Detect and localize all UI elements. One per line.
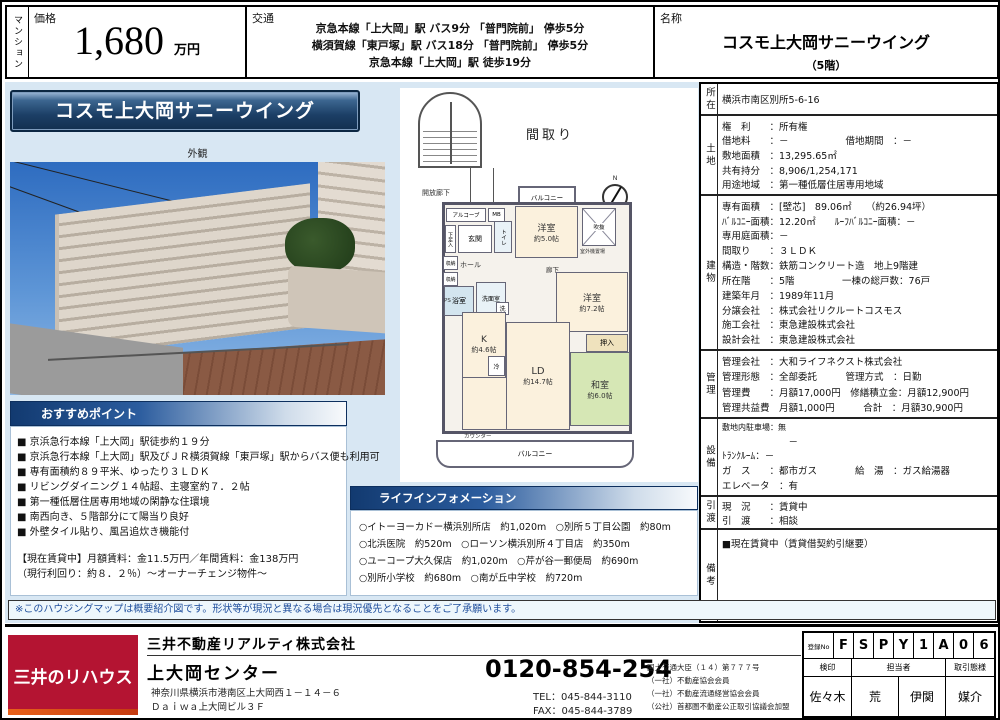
address-line: Ｄａｉｗａ上大岡ビル３Ｆ [151, 699, 265, 713]
fax-number: FAX：045-844-3789 [533, 705, 632, 719]
staff-stamp: 荒 [852, 677, 899, 716]
tel-number: TEL：045-844-3110 [533, 691, 632, 705]
license-line: （一社）不動産協会会員 [647, 674, 799, 687]
license-line: 国土交通大臣（１４）第７７７号 [647, 661, 799, 674]
staircase [418, 92, 482, 168]
detail-line: 敷地面積 ：13,295.65㎡ [722, 148, 993, 162]
logo-stripe [8, 709, 138, 715]
recommend-header: おすすめポイント [10, 401, 347, 426]
license-info: 国土交通大臣（１４）第７７７号 （一社）不動産協会会員 （一社）不動産流通経営協… [647, 661, 799, 713]
access-line: 京急本線「上大岡」駅 バス9分 「普門院前」 停歩5分 [247, 20, 653, 37]
void-label: 吹抜 [593, 223, 604, 231]
detail-line: 敷地内駐車場：無 [722, 422, 993, 433]
room-name: 洋室 [583, 291, 601, 304]
details-table: 所在 横浜市南区別所5-6-16 土地 権 利 ：所有権 借地料 ：－ 借地期間… [699, 82, 999, 623]
floor-plan-title: 間取り [526, 124, 574, 143]
outdoor-unit-label: 室外機置場 [580, 248, 605, 255]
section-location: 所在 横浜市南区別所5-6-16 [701, 84, 997, 116]
detail-line: 間取り ：３ＬＤＫ [722, 243, 993, 257]
property-category-vertical: マンション [7, 7, 29, 77]
closet: 押入 [586, 334, 628, 352]
detail-line: 用途地域 ：第一種低層住居専用地域 [722, 177, 993, 191]
compass-n-label: N [598, 174, 632, 182]
access-label: 交通 [252, 10, 274, 26]
exterior-photo [10, 162, 385, 395]
registration-label: 登録No [804, 633, 834, 659]
section-label: 所在 [701, 84, 718, 114]
recommend-item: ■ 外壁タイル貼り、風呂追炊き機能付 [17, 525, 340, 540]
room-name: 和室 [591, 378, 609, 391]
room-size: 約6.0帖 [587, 391, 612, 401]
detail-line: 引 渡 ：相談 [722, 513, 993, 527]
meter-box-label: MB [492, 212, 501, 218]
transaction-type-value: 媒介 [946, 677, 994, 716]
branch-name: 上大岡センター [147, 659, 280, 684]
detail-line: 建築年月 ：1989年11月 [722, 288, 993, 302]
access-line: 横須賀線「東戸塚」駅 バス18分 「普門院前」 停歩5分 [247, 37, 653, 54]
detail-line: 管理形態 ：全部委託 管理方式 ：日勤 [722, 369, 993, 383]
detail-line: ガ ス ：都市ガス 給 湯 ：ガス給湯器 [722, 463, 993, 477]
room-western-5: 洋室 約5.0帖 [515, 206, 578, 258]
detail-line: ﾄﾗﾝｸﾙｰﾑ：－ [722, 448, 993, 462]
section-management: 管理 管理会社 ：大和ライフネクスト株式会社 管理形態 ：全部委託 管理方式 ：… [701, 351, 997, 419]
company-name: 三井不動産リアルティ株式会社 [147, 634, 356, 654]
name-section: 名称 コスモ上大岡サニーウイング （5階） [655, 7, 997, 77]
building-main [55, 184, 310, 360]
fridge-space: 冷 [488, 356, 505, 376]
void-shaft: 吹抜 [582, 208, 616, 246]
registration-char: A [934, 633, 954, 659]
price-number: 1,680 [74, 18, 164, 63]
staff-header: 担当者 [852, 659, 946, 677]
life-info-line: ○イトーヨーカドー横浜別所店 約1,020m ○別所５丁目公園 約80m [359, 519, 689, 536]
room-name: 洋室 [537, 221, 555, 234]
recommend-item: ■ リビングダイニング１４帖超、主寝室約７．２帖 [17, 480, 340, 495]
tel-fax: TEL：045-844-3110 FAX：045-844-3789 [533, 691, 632, 719]
detail-line: 施工会社 ：東急建設株式会社 [722, 317, 993, 331]
life-info-line: ○ユーコープ大久保店 約1,020m ○芹が谷一郵便局 約690m [359, 553, 689, 570]
detail-line: 管理共益費 月額1,000円 合計 ：月額30,900円 [722, 400, 993, 414]
registration-char: P [874, 633, 894, 659]
section-label: 引渡 [701, 497, 718, 528]
photo-caption: 外観 [10, 145, 385, 160]
recommend-box: ■ 京浜急行本線「上大岡」駅徒歩約１９分 ■ 京浜急行本線「上大岡」駅及びＪＲ横… [10, 426, 347, 596]
detail-line: 現 況 ：賃貸中 [722, 499, 993, 513]
section-building: 建物 専有面積 ：[壁芯] 89.06㎡ （約26.94坪） ﾊﾞﾙｺﾆｰ面積：… [701, 196, 997, 351]
life-info-header: ライフインフォメーション [350, 486, 698, 510]
detail-line: － [722, 434, 993, 448]
counter-label: カウンター [464, 432, 492, 440]
address-line: 神奈川県横浜市港南区上大岡西１－１４－６ [151, 685, 341, 699]
recommend-item: ■ 南西向き、５階部分にて陽当り良好 [17, 510, 340, 525]
living-dining: LD 約14.7帖 [506, 322, 570, 430]
listing-sheet: マンション 価格 1,680 万円 交通 京急本線「上大岡」駅 バス9分 「普門… [0, 0, 1000, 720]
stair-divider [450, 102, 452, 164]
storage: 収納 [443, 256, 458, 270]
registration-row: 登録No F S P Y 1 A 0 6 [804, 633, 994, 659]
name-label: 名称 [660, 10, 682, 26]
recommend-item: ■ 専有面積約８９平米、ゆったり３ＬＤＫ [17, 465, 340, 480]
entrance-label: 玄関 [468, 234, 482, 244]
freedial-number: 0120-854-254 [485, 655, 672, 683]
balcony-top-label: バルコニー [531, 192, 563, 202]
section-land: 土地 権 利 ：所有権 借地料 ：－ 借地期間 ：－ 敷地面積 ：13,295.… [701, 116, 997, 196]
section-label: 管理 [701, 351, 718, 417]
toilet: トイレ [494, 221, 512, 253]
room-size: 約7.2帖 [579, 304, 604, 314]
property-name: コスモ上大岡サニーウイング [655, 29, 997, 53]
open-corridor-label: 開放廊下 [422, 188, 450, 198]
storage-label: 収納 [445, 276, 455, 283]
detail-line: 構造・階数：鉄筋コンクリート造 地上9階建 [722, 258, 993, 272]
fridge-label: 冷 [493, 362, 499, 371]
section-delivery: 引渡 現 況 ：賃貸中 引 渡 ：相談 [701, 497, 997, 530]
registration-table: 登録No F S P Y 1 A 0 6 検印 担当者 取引態様 佐々木 荒 伊… [802, 631, 996, 718]
room-size: 約14.7帖 [523, 377, 553, 387]
detail-line: 共有持分 ：8,906/1,254,171 [722, 163, 993, 177]
transaction-type-header: 取引態様 [946, 659, 994, 677]
detail-line: エレベータ ：有 [722, 478, 993, 492]
alcove: アルコーブ [446, 208, 486, 222]
registration-char: 1 [914, 633, 934, 659]
detail-line: 所在階 ：5階 一棟の総戸数：76戸 [722, 273, 993, 287]
spacer [17, 540, 340, 552]
room-japanese: 和室 約6.0帖 [570, 352, 630, 426]
detail-line: 分譲会社 ：株式会社リクルートコスモス [722, 303, 993, 317]
section-label: 設備 [701, 419, 718, 495]
shoe-box-label: 下足入 [447, 232, 454, 247]
corridor-connector [470, 168, 494, 204]
life-info-line: ○別所小学校 約680m ○南が丘中学校 約720m [359, 570, 689, 587]
life-info-box: ○イトーヨーカドー横浜別所店 約1,020m ○別所５丁目公園 約80m ○北浜… [350, 510, 698, 596]
price-value: 1,680 万円 [29, 17, 245, 64]
detail-line: ﾊﾞﾙｺﾆｰ面積：12.20㎡ ﾙｰﾌﾊﾞﾙｺﾆｰ面積：－ [722, 214, 993, 228]
registration-char: 6 [974, 633, 994, 659]
recommend-item: ■ 京浜急行本線「上大岡」駅及びＪＲ横須賀線「東戸塚」駅からバス便も利用可 [17, 450, 340, 465]
living-dining-ext [462, 378, 507, 430]
disclaimer: ※このハウジングマップは概要紹介図です。形状等が現況と異なる場合は現況優先となる… [8, 600, 996, 620]
inspection-stamp: 佐々木 [804, 677, 852, 716]
entrance: 玄関 [458, 225, 492, 253]
pipe-space-label: PS [444, 298, 451, 304]
footer: 三井のリハウス 三井不動産リアルティ株式会社 上大岡センター 神奈川県横浜市港南… [5, 624, 999, 719]
detail-line: 権 利 ：所有権 [722, 119, 993, 133]
hall-label: ホール [460, 260, 481, 270]
storage: 収納 [443, 272, 458, 286]
yield-note: （現行利回り：約８．２％）～オーナーチェンジ物件～ [17, 567, 340, 582]
registration-char: Y [894, 633, 914, 659]
detail-line: 設計会社 ：東急建設株式会社 [722, 332, 993, 346]
building-wall [288, 266, 386, 333]
staff-stamp: 伊関 [899, 677, 946, 716]
room-name: K [481, 335, 487, 345]
logo-text: 三井のリハウス [14, 663, 133, 688]
floor-plan: 間取り 開放廊下 N バルコニー アルコーブ MB 下足入 [400, 88, 698, 482]
recommend-item: ■ 京浜急行本線「上大岡」駅徒歩約１９分 [17, 435, 340, 450]
registration-char: F [834, 633, 854, 659]
balcony-bottom: バルコニー [436, 440, 634, 468]
room-name: LD [531, 366, 544, 377]
mitsui-rehouse-logo: 三井のリハウス [8, 635, 138, 715]
detail-line: 専有面積 ：[壁芯] 89.06㎡ （約26.94坪） [722, 199, 993, 213]
inspection-header: 検印 [804, 659, 852, 677]
room-size: 約4.6帖 [471, 345, 496, 355]
section-label: 土地 [701, 116, 718, 194]
detail-line: 専用庭面積：－ [722, 228, 993, 242]
section-label: 建物 [701, 196, 718, 349]
closet-label: 押入 [600, 338, 614, 348]
stamp-header-row: 検印 担当者 取引態様 [804, 659, 994, 677]
room-size: 約5.0帖 [534, 234, 559, 244]
alcove-label: アルコーブ [452, 211, 479, 219]
rent-note: 【現在賃貸中】月額賃料：金11.5万円／年間賃料：金138万円 [17, 552, 340, 567]
shoe-box: 下足入 [445, 225, 456, 253]
toilet-label: トイレ [499, 229, 507, 246]
license-line: （公社）首都圏不動産公正取引協議会加盟 [647, 700, 799, 713]
header: マンション 価格 1,680 万円 交通 京急本線「上大岡」駅 バス9分 「普門… [5, 5, 999, 79]
access-line: 京急本線「上大岡」駅 徒歩19分 [247, 54, 653, 71]
property-title-banner: コスモ上大岡サニーウイング [10, 90, 360, 132]
recommend-item: ■ 第一種低層住居専用地域の閑静な住環境 [17, 495, 340, 510]
life-info-line: ○北浜医院 約520m ○ローソン横浜別所４丁目店 約350m [359, 536, 689, 553]
property-floor: （5階） [655, 57, 997, 73]
section-facility: 設備 敷地内駐車場：無 － ﾄﾗﾝｸﾙｰﾑ：－ ガ ス ：都市ガス 給 湯 ：ガ… [701, 419, 997, 497]
location-value: 横浜市南区別所5-6-16 [722, 92, 993, 106]
registration-char: S [854, 633, 874, 659]
detail-line: 管理会社 ：大和ライフネクスト株式会社 [722, 354, 993, 368]
balcony-bottom-label: バルコニー [518, 449, 553, 459]
storage-label: 収納 [445, 260, 455, 267]
price-unit: 万円 [174, 43, 200, 58]
price-section: 価格 1,680 万円 [29, 7, 247, 77]
access-section: 交通 京急本線「上大岡」駅 バス9分 「普門院前」 停歩5分 横須賀線「東戸塚」… [247, 7, 655, 77]
bathroom-label: 浴室 [452, 296, 466, 306]
meter-box: MB [488, 208, 505, 222]
stamp-row: 佐々木 荒 伊関 媒介 [804, 677, 994, 716]
detail-line: ■現在賃貸中（賃貸借契約引継要） [722, 536, 993, 550]
detail-line: 管理費 ：月額17,000円 修繕積立金：月額12,900円 [722, 385, 993, 399]
detail-line: 借地料 ：－ 借地期間 ：－ [722, 133, 993, 147]
registration-char: 0 [954, 633, 974, 659]
license-line: （一社）不動産流通経営協会会員 [647, 687, 799, 700]
divider [147, 655, 801, 656]
